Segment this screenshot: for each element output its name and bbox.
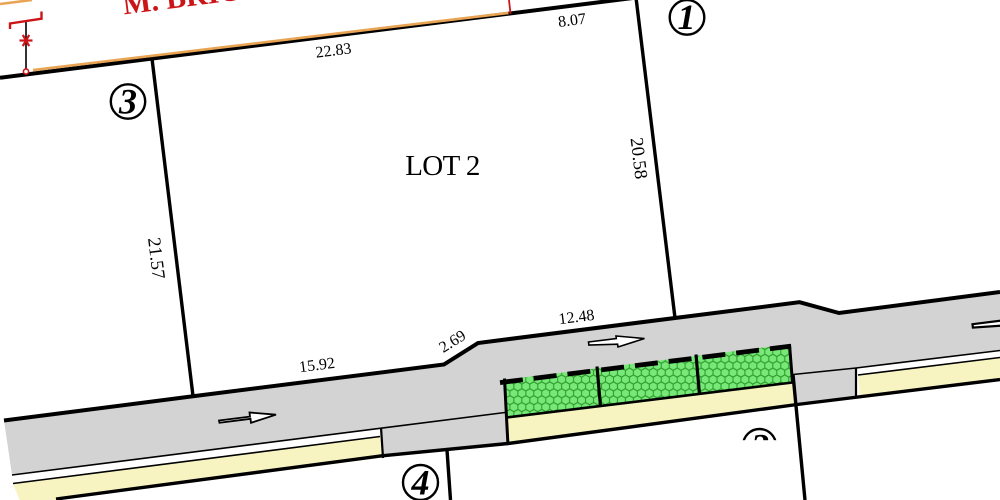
svg-text:4: 4 <box>411 462 430 500</box>
svg-text:LOT 2: LOT 2 <box>405 150 480 182</box>
svg-text:1: 1 <box>678 0 696 37</box>
svg-text:3: 3 <box>118 81 137 121</box>
svg-text:8.07: 8.07 <box>557 11 587 31</box>
